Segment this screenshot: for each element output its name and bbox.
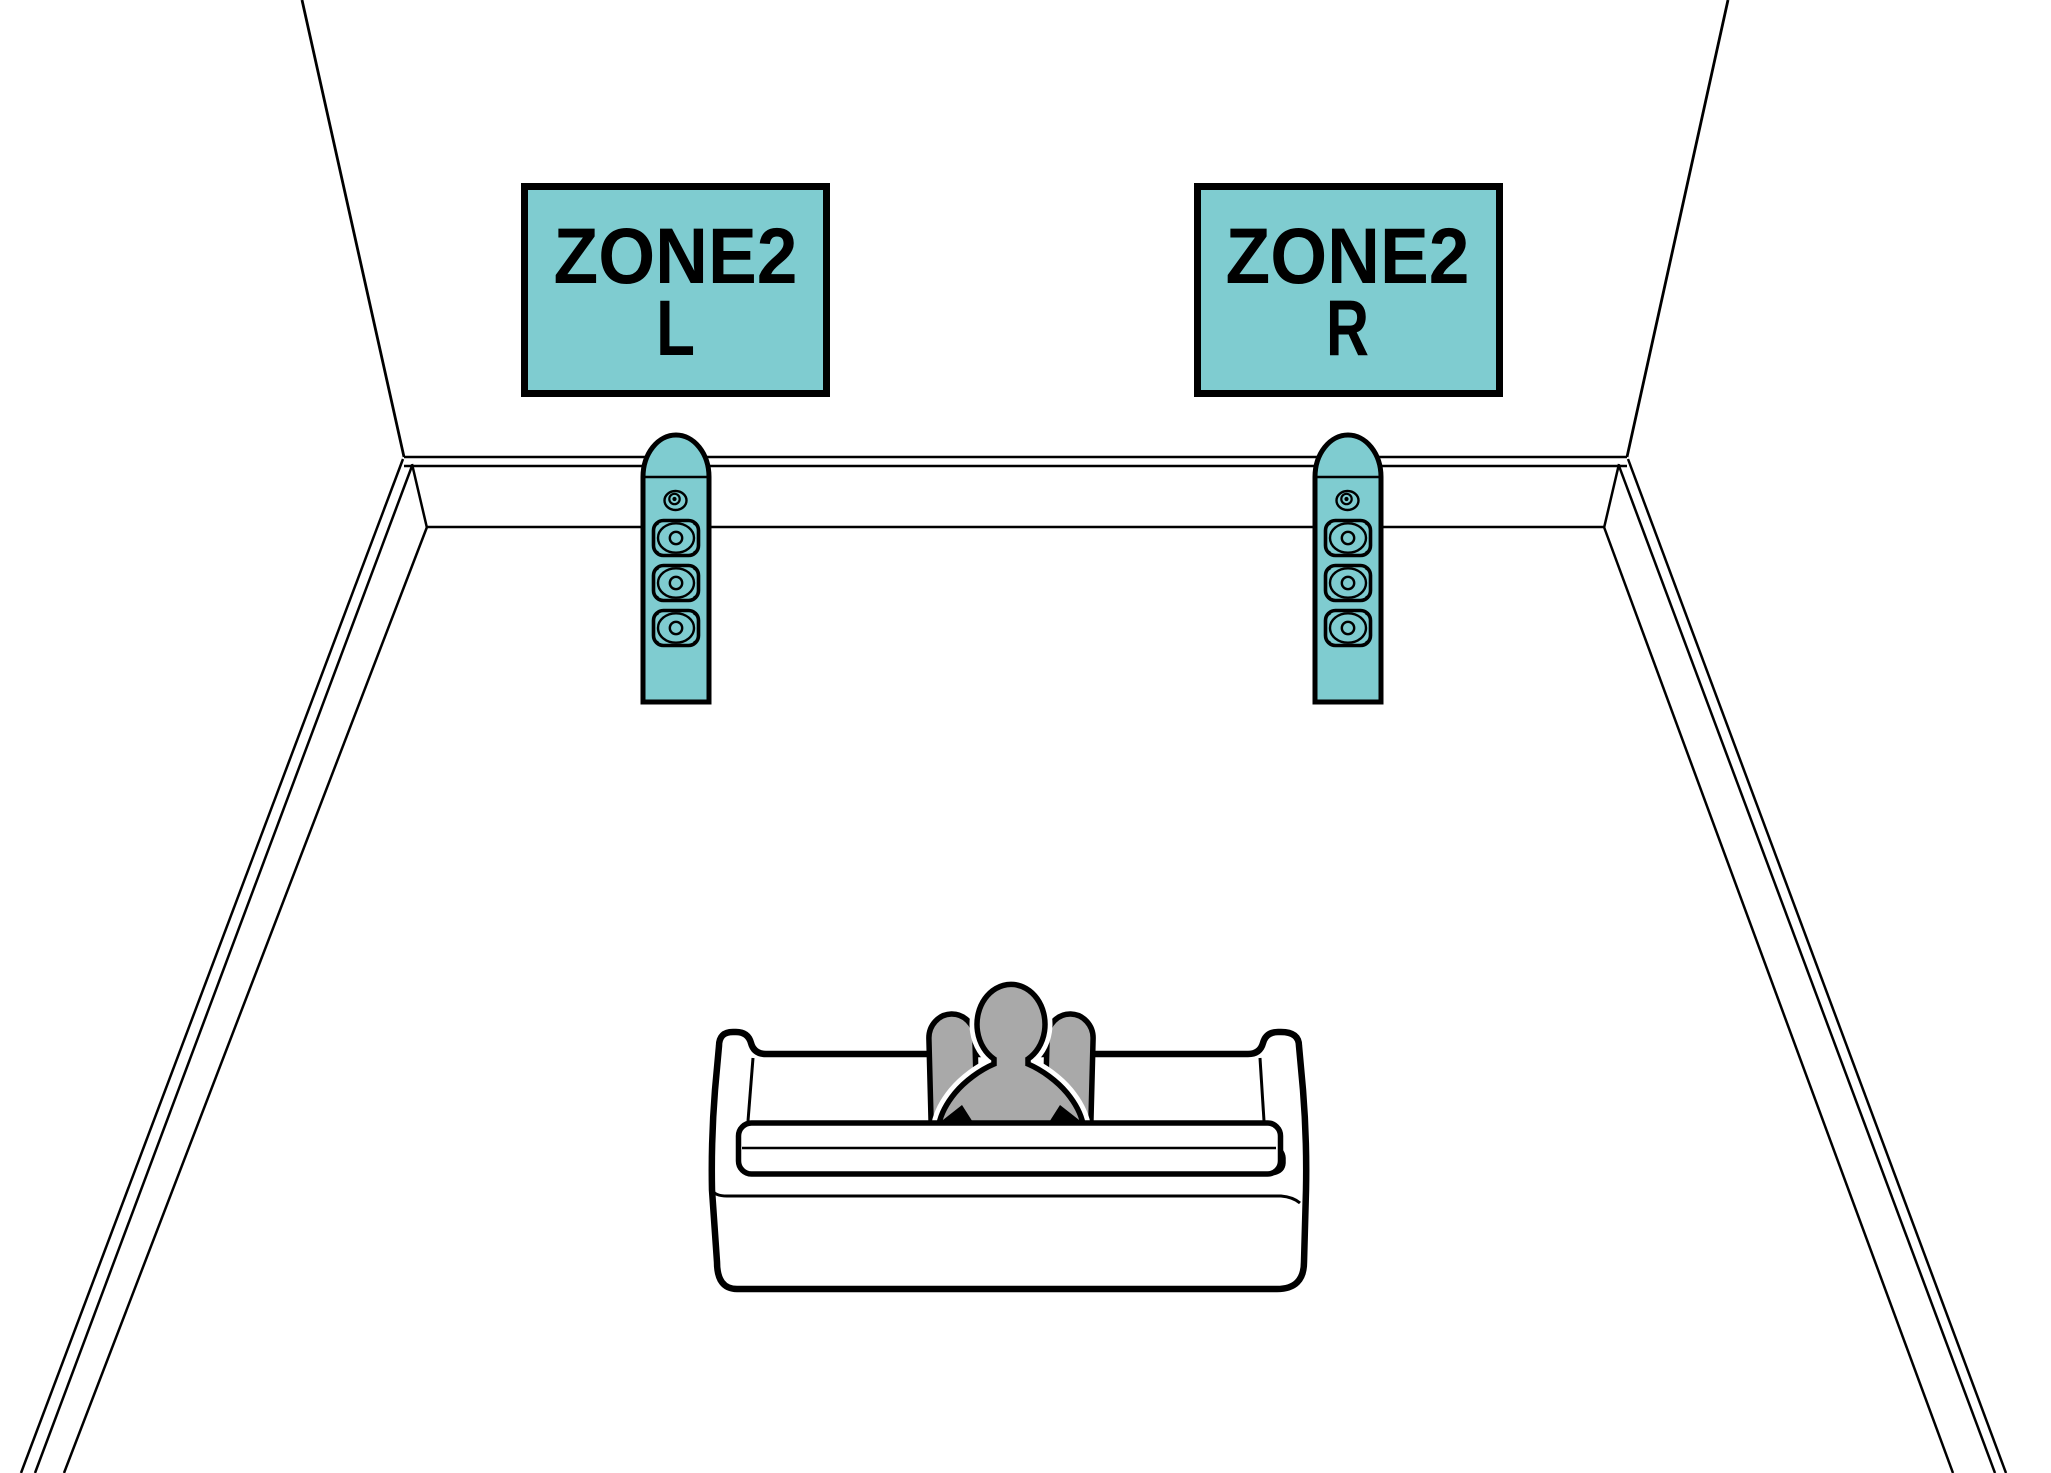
svg-text:R: R [1326, 283, 1369, 372]
svg-text:L: L [656, 283, 695, 372]
